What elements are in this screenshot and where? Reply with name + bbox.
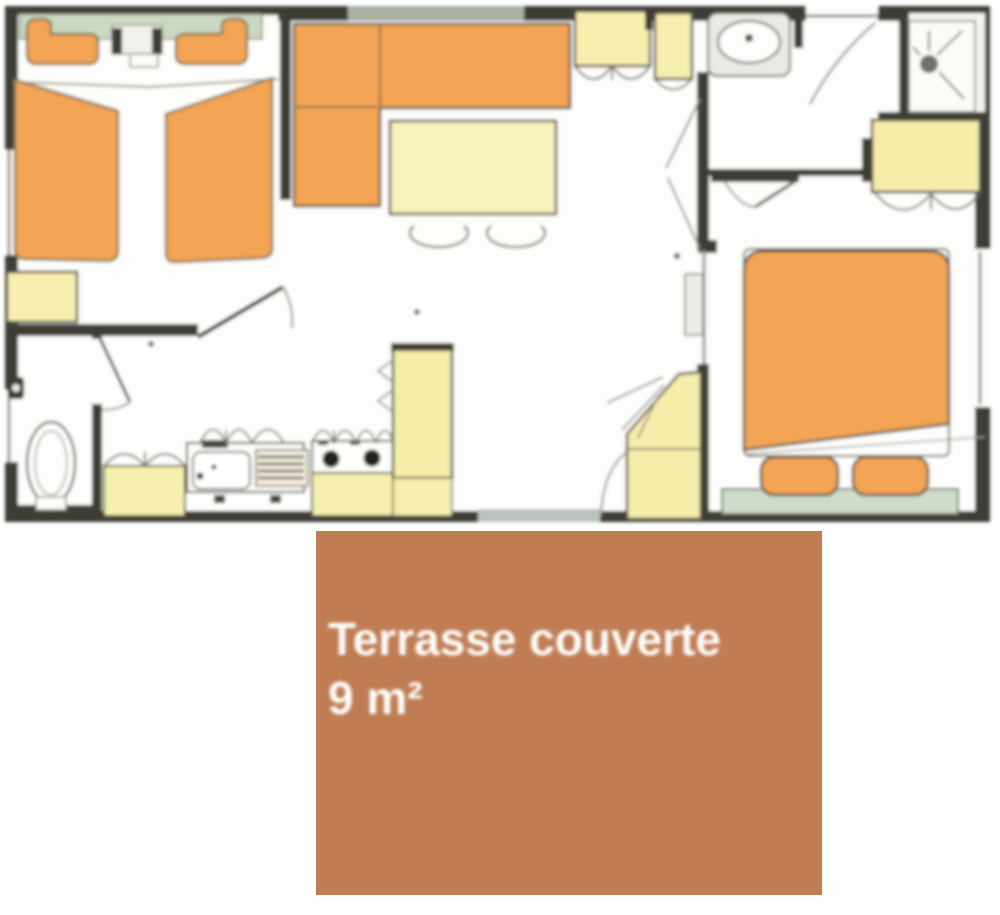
svg-text:9 m²: 9 m² [328,672,423,724]
svg-text:Terrasse couverte: Terrasse couverte [328,613,721,665]
